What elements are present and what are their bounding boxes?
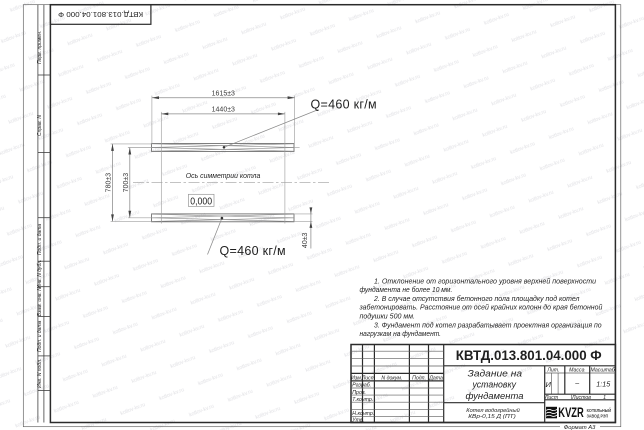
svg-text:Подп. и дата: Подп. и дата xyxy=(37,224,43,256)
svg-text:И: И xyxy=(545,380,551,389)
svg-text:2. В случае отсутствия бетонно: 2. В случае отсутствия бетонного пола пл… xyxy=(373,294,580,303)
svg-text:Ось симметрии котла: Ось симметрии котла xyxy=(186,171,260,180)
svg-text:КВТД.013.801.04.000 Ф: КВТД.013.801.04.000 Ф xyxy=(456,348,602,363)
svg-text:Дата: Дата xyxy=(428,375,443,381)
svg-text:Утв.: Утв. xyxy=(352,418,364,424)
svg-text:Котел водогрейный: Котел водогрейный xyxy=(466,407,520,414)
svg-text:Масса: Масса xyxy=(569,368,584,374)
svg-text:Взам. инв. N: Взам. инв. N xyxy=(37,287,43,317)
svg-text:40±3: 40±3 xyxy=(302,232,309,248)
svg-text:Лист: Лист xyxy=(544,395,559,401)
svg-text:КОТЕЛЬНЫЙ: КОТЕЛЬНЫЙ xyxy=(587,406,612,413)
svg-text:Изм.: Изм. xyxy=(351,375,362,381)
svg-text:установку: установку xyxy=(471,380,516,390)
svg-text:780±3: 780±3 xyxy=(106,173,113,193)
svg-text:Перв. примен.: Перв. примен. xyxy=(37,31,43,64)
svg-text:КВТД.013.801.04.000 Ф: КВТД.013.801.04.000 Ф xyxy=(58,10,143,17)
svg-text:Пров.: Пров. xyxy=(352,390,366,396)
svg-text:1440±3: 1440±3 xyxy=(212,107,235,114)
svg-text:1: 1 xyxy=(603,395,606,401)
svg-text:Подп. и дата: Подп. и дата xyxy=(37,320,43,352)
svg-text:1:15: 1:15 xyxy=(596,380,611,389)
svg-text:Q=460 кг/м: Q=460 кг/м xyxy=(311,98,377,112)
svg-text:Разраб.: Разраб. xyxy=(352,383,371,389)
svg-text:700±3: 700±3 xyxy=(123,173,130,193)
svg-text:Инв. N подл.: Инв. N подл. xyxy=(37,359,43,388)
svg-text:Масштаб: Масштаб xyxy=(590,368,615,374)
svg-text:фундамента не более 10 мм.: фундамента не более 10 мм. xyxy=(360,285,453,294)
svg-text:3. Фундамент под котел разраба: 3. Фундамент под котел разрабатывает про… xyxy=(374,320,602,329)
svg-text:0,000: 0,000 xyxy=(190,197,212,208)
svg-text:подушки 500 мм.: подушки 500 мм. xyxy=(360,312,416,321)
svg-text:Инв. N дубл.: Инв. N дубл. xyxy=(37,260,43,289)
svg-text:нагрузкам на фундамент.: нагрузкам на фундамент. xyxy=(360,329,442,338)
svg-text:Справ. N: Справ. N xyxy=(37,115,43,136)
svg-text:забетонировать. Расстояние от: забетонировать. Расстояние от осей крайн… xyxy=(359,303,604,312)
svg-text:N докум.: N докум. xyxy=(381,375,402,381)
svg-text:Н.контр.: Н.контр. xyxy=(352,411,374,417)
svg-text:Задание на: Задание на xyxy=(468,368,523,378)
svg-text:ЗАВОД РЭП: ЗАВОД РЭП xyxy=(587,414,609,419)
svg-text:фундамента: фундамента xyxy=(466,391,524,401)
svg-text:Лит.: Лит. xyxy=(546,368,559,374)
svg-text:Листов: Листов xyxy=(571,395,591,401)
svg-text:КВр-0,15 Д (ПТ): КВр-0,15 Д (ПТ) xyxy=(468,414,516,420)
svg-text:Подп.: Подп. xyxy=(412,375,426,381)
svg-text:1. Отклонение от горизонтально: 1. Отклонение от горизонтального уровня … xyxy=(374,276,597,285)
svg-text:Лист: Лист xyxy=(361,375,376,381)
svg-text:KVZR: KVZR xyxy=(558,405,584,420)
svg-text:–: – xyxy=(575,381,579,388)
svg-text:Q=460 кг/м: Q=460 кг/м xyxy=(220,244,286,258)
svg-text:Формат А3: Формат А3 xyxy=(564,425,596,430)
svg-text:Т.контр.: Т.контр. xyxy=(352,397,373,403)
svg-text:1615±3: 1615±3 xyxy=(212,90,235,97)
